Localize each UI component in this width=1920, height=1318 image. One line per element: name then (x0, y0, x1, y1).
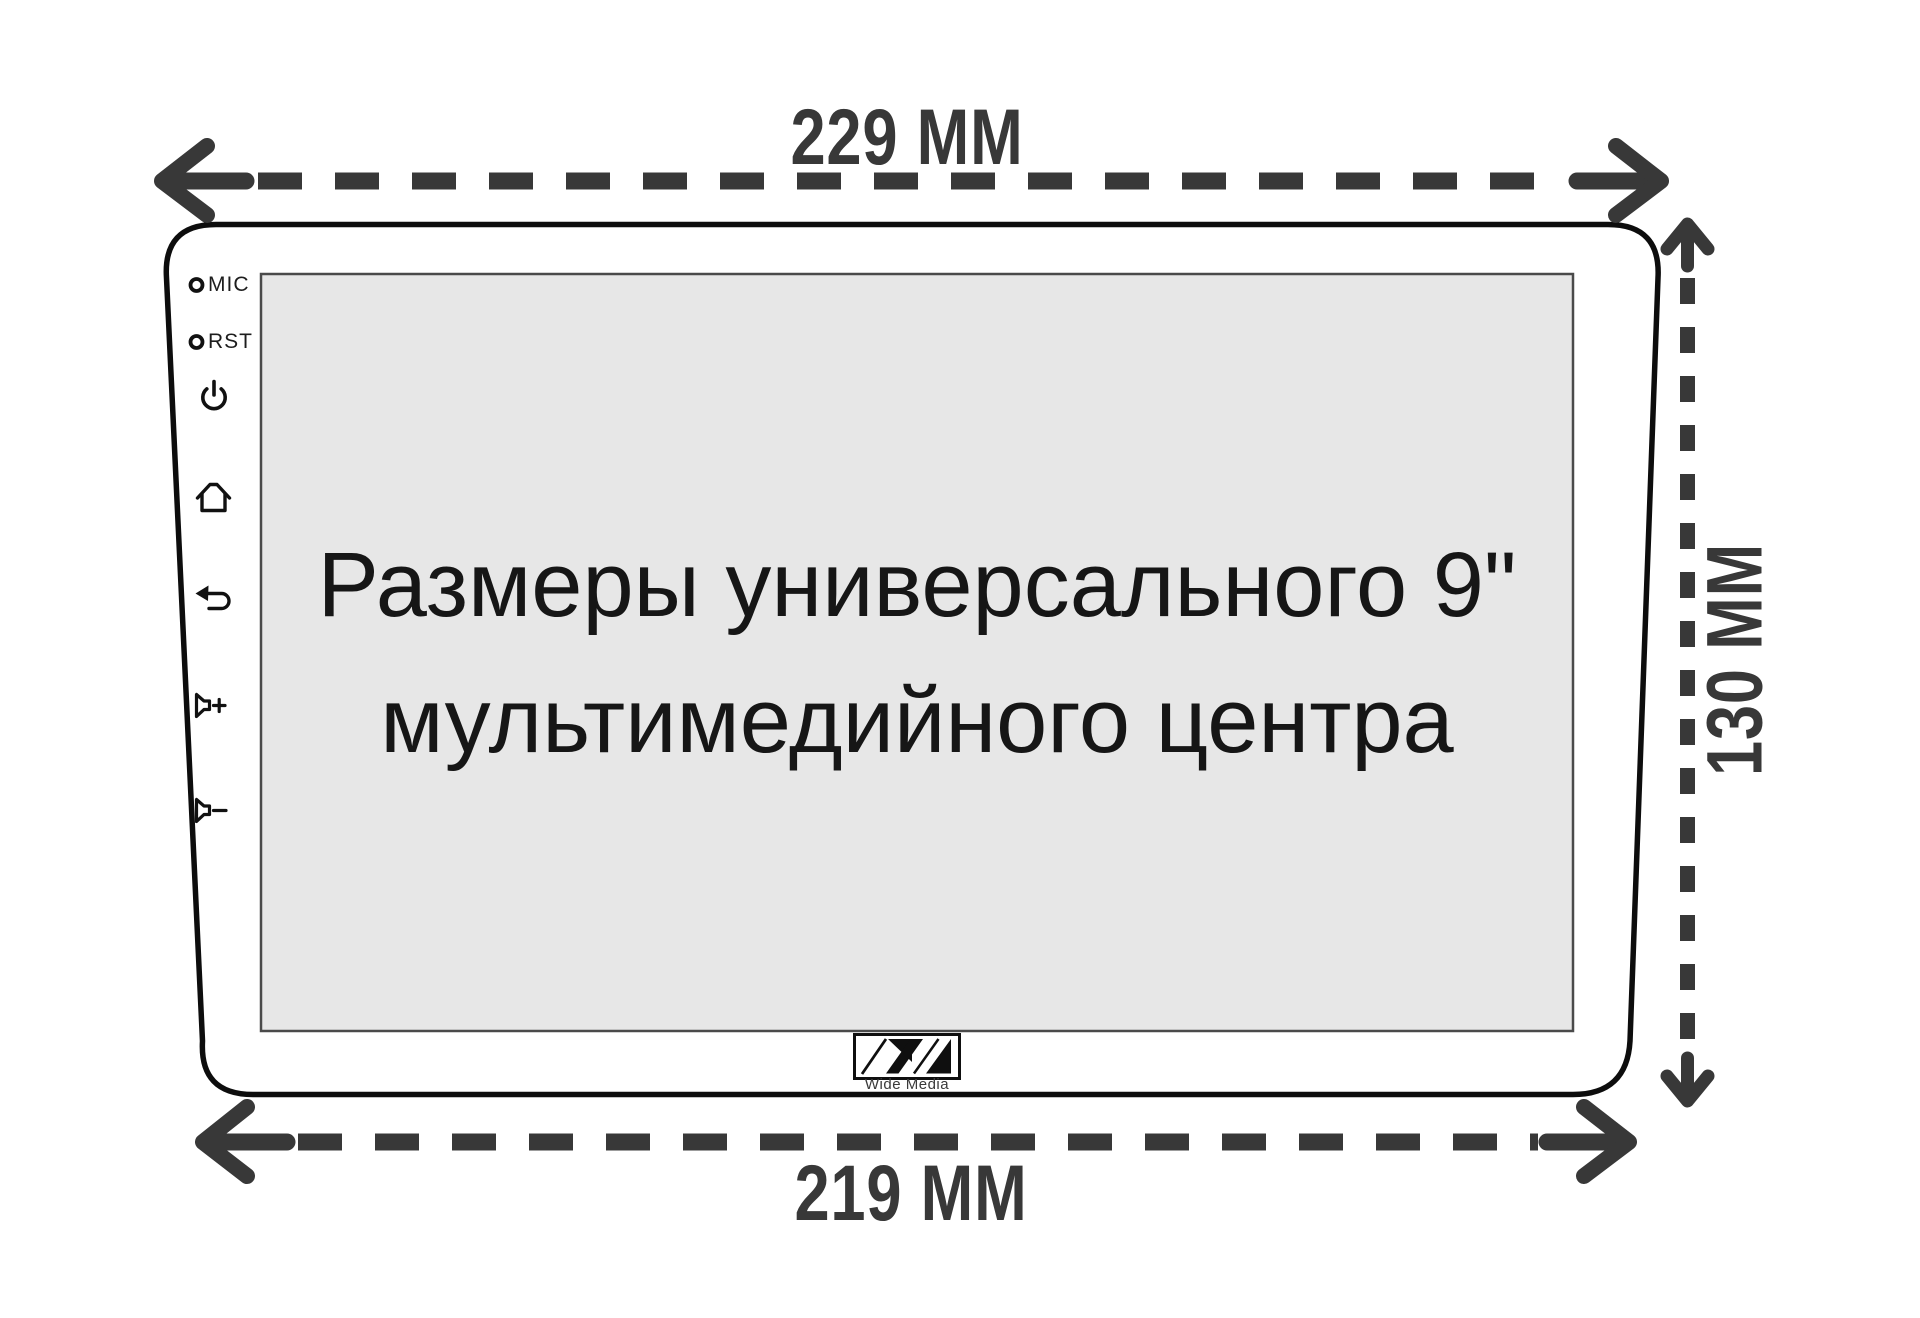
wide-media-logo-icon (855, 1035, 960, 1079)
top-width-dimension-label: 229 MM (707, 97, 1107, 176)
screen-caption-line1: Размеры универсального 9" (261, 517, 1573, 653)
screen-caption: Размеры универсального 9" мультимедийног… (261, 517, 1573, 789)
mic-label: MIC (208, 274, 250, 296)
rst-label: RST (208, 331, 253, 353)
height-dimension-label: 130 MM (1695, 500, 1774, 820)
bottom-width-dimension-label: 219 MM (711, 1153, 1111, 1232)
dimension-diagram: 229 MM 219 MM 130 MM Размеры универсальн… (0, 0, 1920, 1318)
screen-caption-line2: мультимедийного центра (261, 653, 1573, 789)
wide-media-logo-text: Wide Media (850, 1077, 964, 1093)
